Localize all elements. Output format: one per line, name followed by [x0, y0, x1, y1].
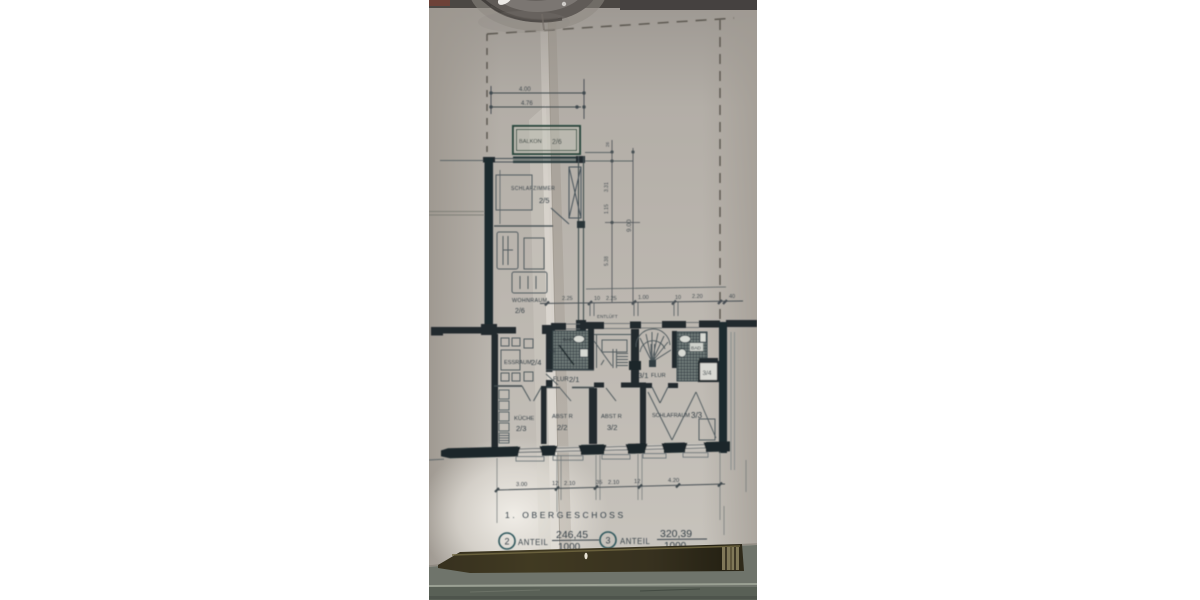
svg-text:9.00: 9.00 [626, 219, 633, 232]
svg-text:SCHLAFRAUM: SCHLAFRAUM [652, 413, 690, 419]
svg-text:246,45: 246,45 [556, 529, 588, 541]
svg-text:26: 26 [605, 141, 610, 147]
svg-text:2.25: 2.25 [606, 296, 617, 302]
svg-text:2/1: 2/1 [569, 375, 579, 384]
svg-text:4.20: 4.20 [668, 478, 679, 484]
svg-text:2.20: 2.20 [692, 294, 703, 300]
svg-text:2.10: 2.10 [608, 480, 619, 486]
svg-text:ENTLÜFT: ENTLÜFT [597, 313, 618, 319]
svg-text:2/2: 2/2 [557, 423, 567, 432]
svg-text:ABST R: ABST R [552, 414, 573, 420]
svg-text:3/4: 3/4 [703, 370, 712, 377]
svg-text:2/3: 2/3 [516, 424, 526, 433]
svg-text:ANTEIL: ANTEIL [518, 538, 548, 547]
svg-text:4.00: 4.00 [519, 87, 531, 93]
svg-text:ANTEIL: ANTEIL [620, 537, 650, 546]
svg-text:12: 12 [634, 479, 640, 485]
svg-text:3.00: 3.00 [516, 482, 527, 488]
svg-text:1.15: 1.15 [604, 204, 610, 214]
svg-text:10: 10 [594, 296, 600, 302]
svg-text:BAD: BAD [563, 337, 573, 342]
svg-text:ESSRAUM: ESSRAUM [504, 360, 532, 366]
svg-text:3/2: 3/2 [607, 423, 617, 432]
svg-text:1.00: 1.00 [638, 295, 649, 301]
svg-text:2/4: 2/4 [531, 358, 541, 367]
svg-text:KÜCHE: KÜCHE [514, 415, 534, 422]
svg-text:SCHLAFZIMMER: SCHLAFZIMMER [511, 186, 555, 192]
svg-text:40: 40 [729, 294, 735, 300]
svg-text:3/1: 3/1 [638, 371, 648, 380]
svg-text:35: 35 [596, 480, 602, 486]
svg-text:BALKON: BALKON [519, 139, 542, 145]
svg-text:3/3: 3/3 [691, 411, 703, 420]
svg-text:3: 3 [606, 536, 611, 546]
svg-text:2/6: 2/6 [552, 139, 562, 146]
svg-text:2: 2 [505, 537, 510, 547]
svg-text:FLUR: FLUR [651, 373, 666, 379]
svg-text:2/5: 2/5 [539, 196, 549, 205]
svg-text:1. OBERGESCHOSS: 1. OBERGESCHOSS [505, 510, 626, 520]
svg-text:5.38: 5.38 [604, 256, 610, 266]
svg-text:10: 10 [675, 295, 681, 301]
svg-text:4.76: 4.76 [521, 101, 533, 107]
svg-text:12: 12 [552, 481, 558, 487]
svg-text:2.10: 2.10 [564, 481, 575, 487]
svg-text:320,39: 320,39 [660, 528, 692, 540]
svg-text:ABST R: ABST R [601, 414, 622, 420]
svg-text:3.31: 3.31 [604, 182, 610, 192]
svg-text:BAD: BAD [691, 346, 701, 352]
svg-text:2/6: 2/6 [515, 308, 525, 315]
svg-text:2/5: 2/5 [548, 349, 556, 355]
svg-text:2.25: 2.25 [562, 296, 573, 302]
